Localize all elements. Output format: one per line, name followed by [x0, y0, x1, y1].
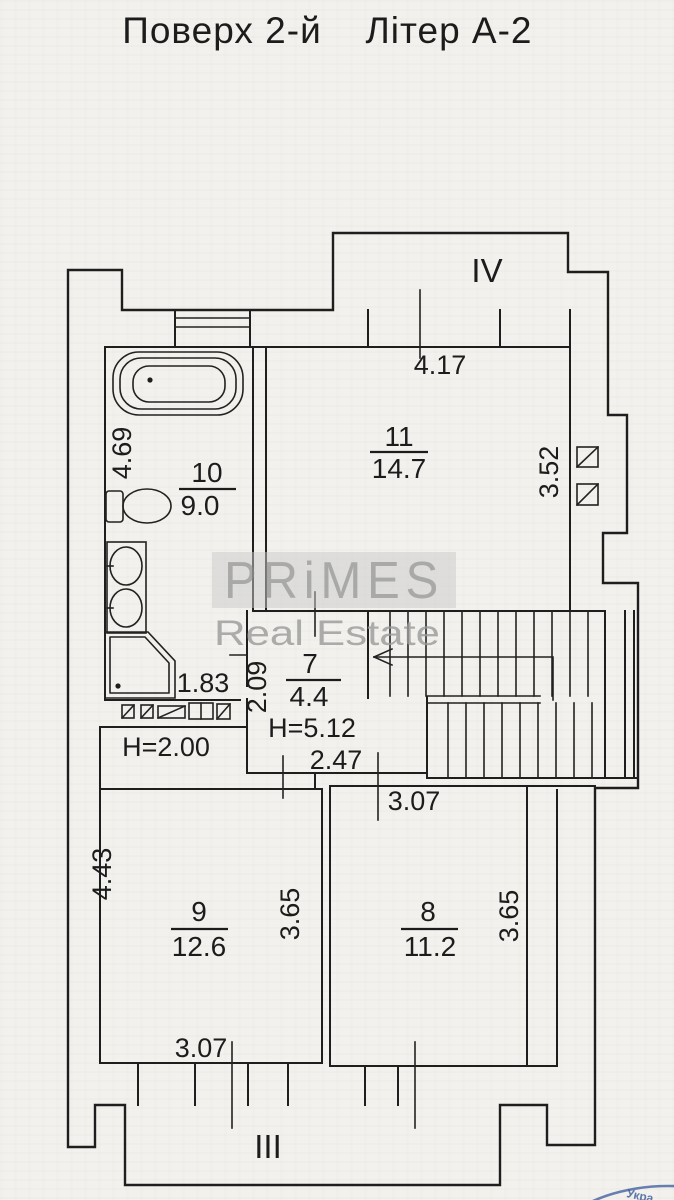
room8-area: 11.2 [404, 931, 456, 962]
stair-treads-lower [448, 703, 592, 778]
scanned-floor-plan-page: Поверх 2-й Літер А-2 [0, 0, 674, 1200]
shower-icon [105, 632, 175, 698]
room11-area: 14.7 [372, 453, 427, 484]
bathtub-icon [113, 352, 243, 415]
room10-area: 9.0 [181, 490, 220, 521]
room7-number: 7 [302, 648, 318, 679]
dim-room11-width: 4.17 [414, 350, 467, 380]
watermark-brand: PRiMES [224, 552, 444, 610]
title-letter: Літер А-2 [365, 10, 532, 51]
dim-room9-width-bottom: 3.07 [175, 1033, 228, 1063]
stair-direction-arrow [374, 649, 553, 700]
dim-room8-right: 3.65 [494, 890, 524, 943]
room7-area: 4.4 [290, 681, 329, 712]
watermark-subtitle: Real Estate [214, 614, 440, 653]
balcony-iv-label: IV [471, 252, 502, 289]
dim-room8-width-top: 3.07 [388, 786, 441, 816]
room9-area: 12.6 [172, 931, 227, 962]
dim-room11-right: 3.52 [534, 446, 564, 499]
toilet-icon [106, 489, 171, 523]
dim-room9-left: 4.43 [87, 848, 117, 901]
room9-number: 9 [191, 896, 207, 927]
room8-number: 8 [420, 896, 436, 927]
watermark: PRiMES Real Estate [212, 552, 456, 653]
sink-icon [107, 542, 146, 633]
bathroom-fixtures [105, 352, 243, 719]
room11-number: 11 [384, 421, 413, 452]
dim-shower-width: 1.83 [177, 668, 230, 698]
small-fixtures-row [122, 703, 230, 719]
dim-bathroom-left: 4.69 [107, 427, 137, 480]
inner-walls [100, 310, 605, 1105]
closet-height-label: H=2.00 [122, 732, 210, 762]
room10-number: 10 [191, 457, 222, 488]
floor-plan: Поверх 2-й Літер А-2 [0, 0, 674, 1200]
title-floor: Поверх 2-й [122, 10, 322, 51]
window-hatch-icons [577, 447, 598, 505]
dim-hall-width: 2.47 [310, 745, 363, 775]
stamp-text: Укра [625, 1186, 655, 1200]
stamp: Укра [538, 1186, 674, 1200]
dim-hall-left: 2.09 [242, 661, 272, 714]
room7-ceiling-height: H=5.12 [268, 713, 356, 743]
dim-room9-right: 3.65 [275, 888, 305, 941]
balcony-iii-label: III [254, 1128, 282, 1165]
